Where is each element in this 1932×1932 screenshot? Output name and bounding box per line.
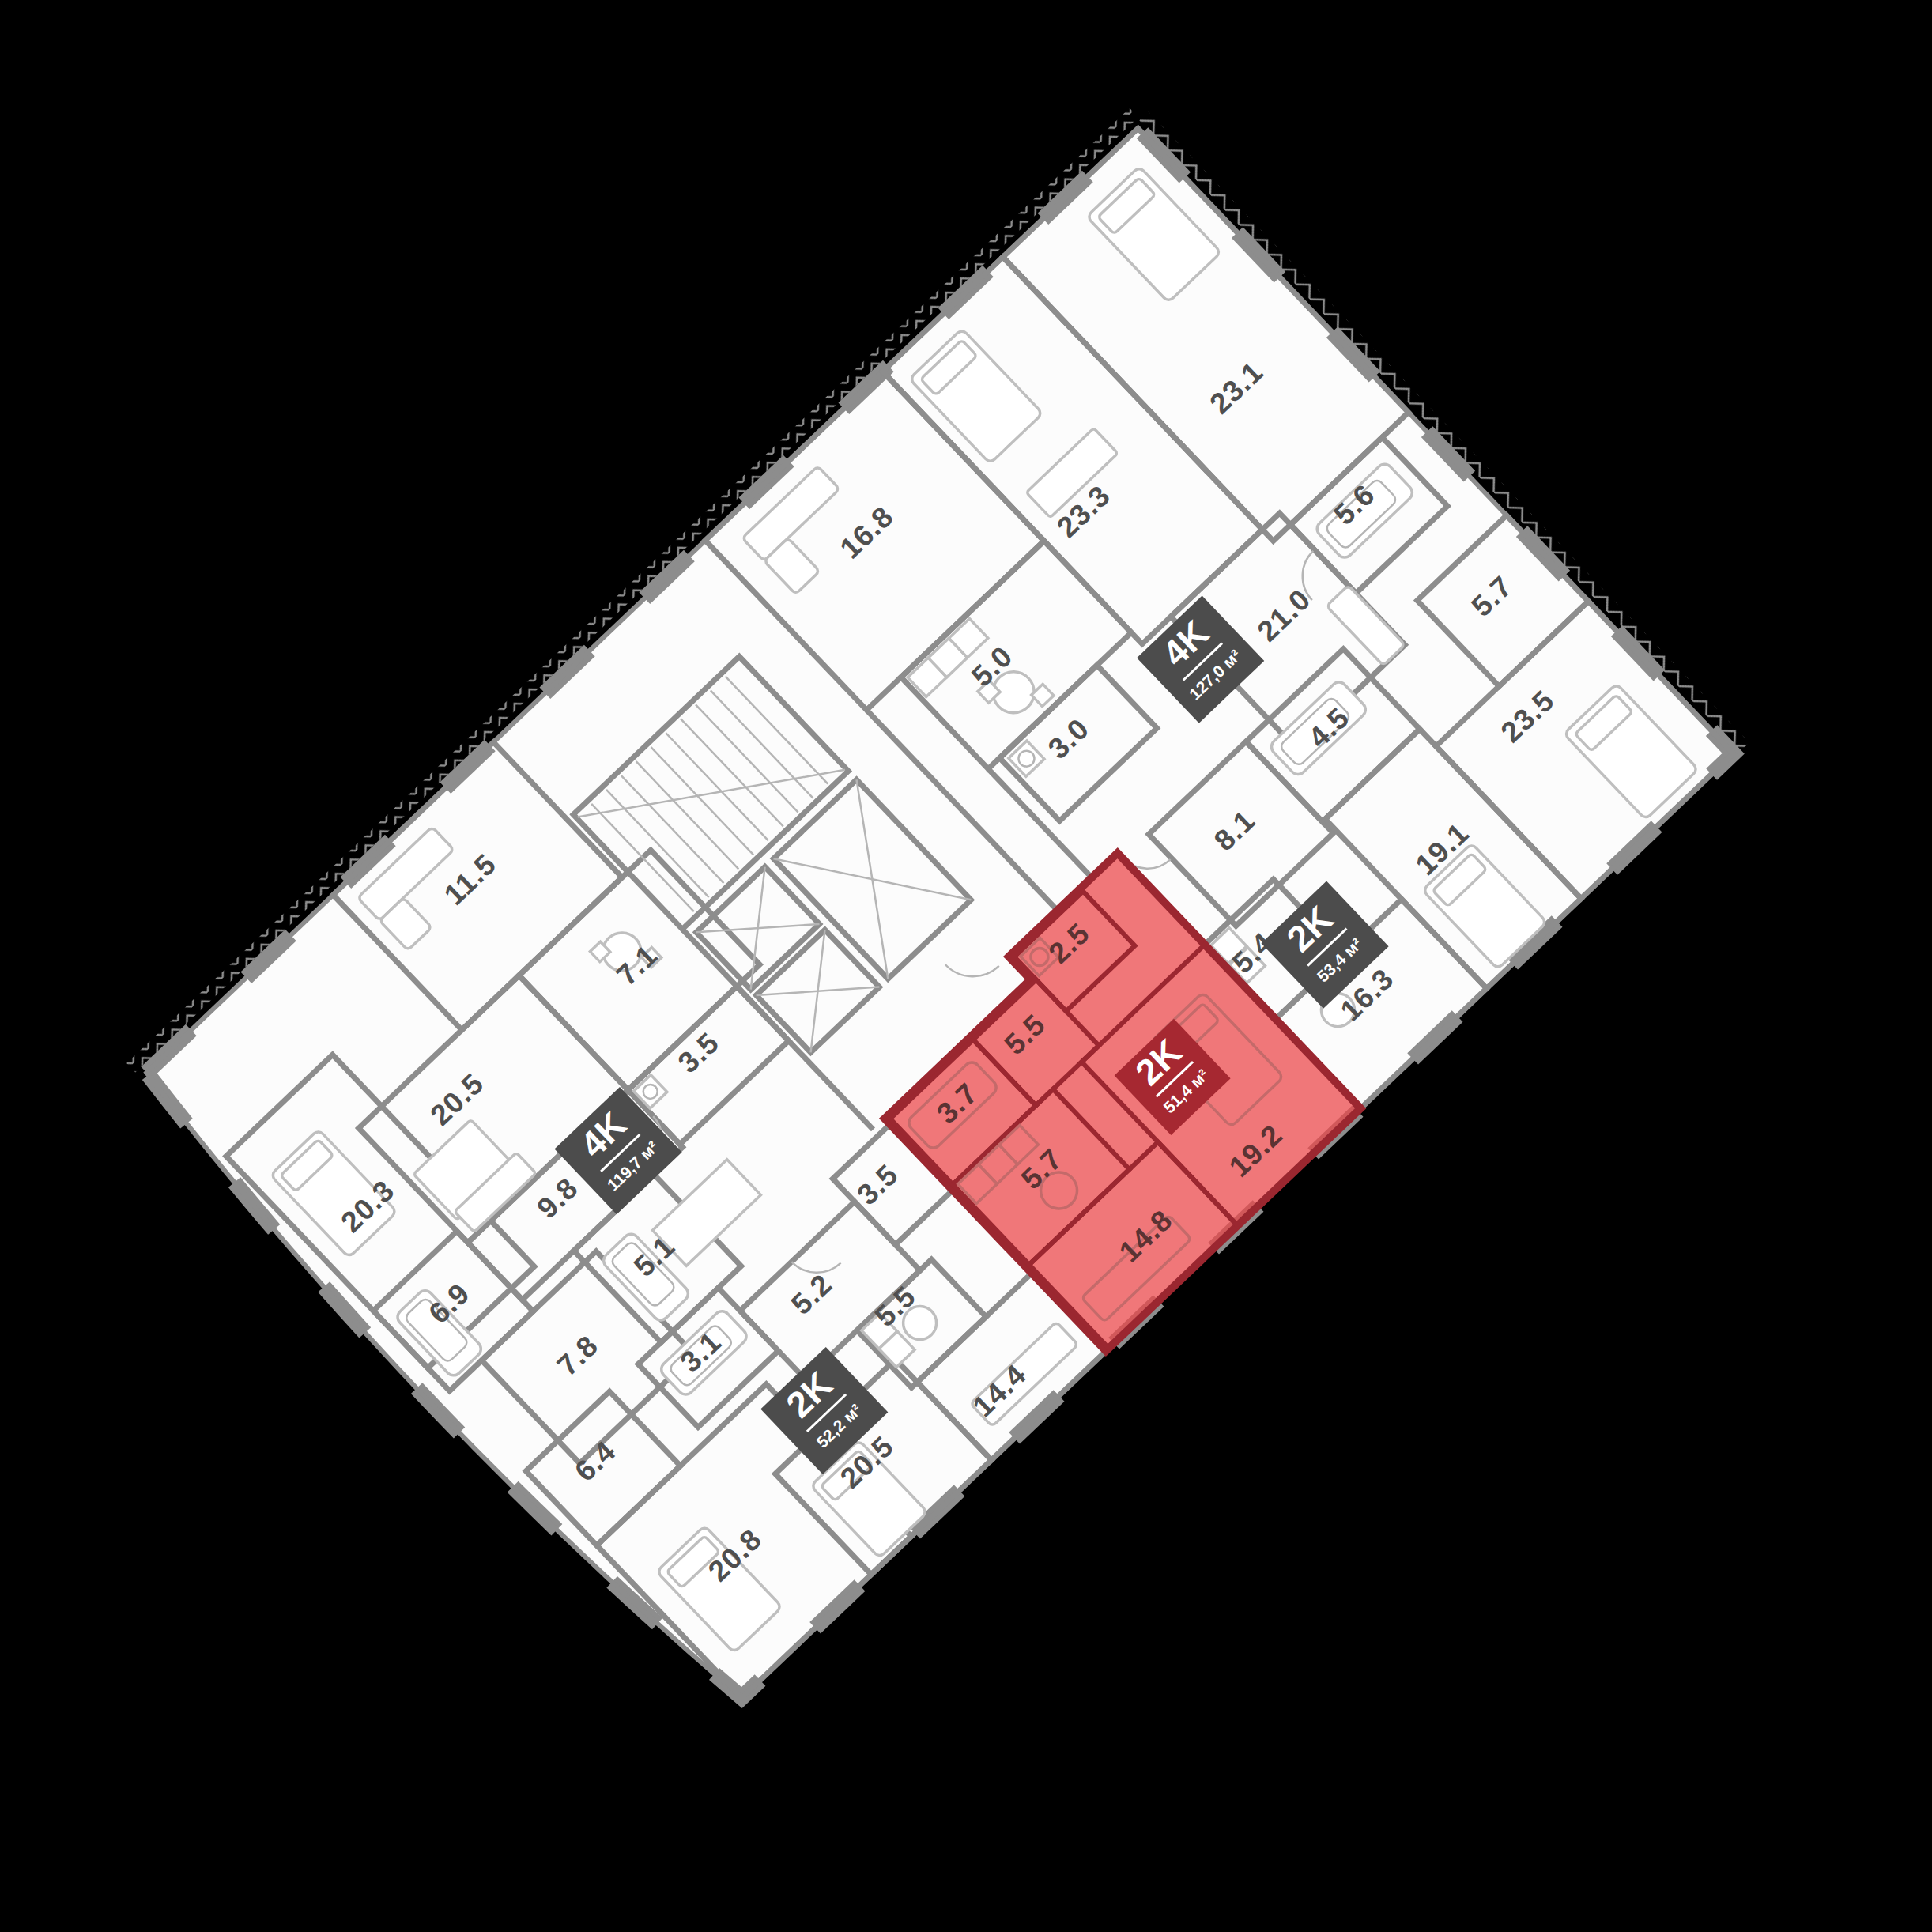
- floor-plan-svg: 11.5 20.5 20.3 7.1 3.5 9.8 5.1 6.9 7.8 6…: [142, 124, 1738, 1703]
- floor-plan-container: 11.5 20.5 20.3 7.1 3.5 9.8 5.1 6.9 7.8 6…: [142, 124, 1738, 1703]
- black-background: 11.5 20.5 20.3 7.1 3.5 9.8 5.1 6.9 7.8 6…: [0, 0, 1932, 1932]
- screen: { "meta": { "type": "floor-plan", "langu…: [0, 0, 1932, 1932]
